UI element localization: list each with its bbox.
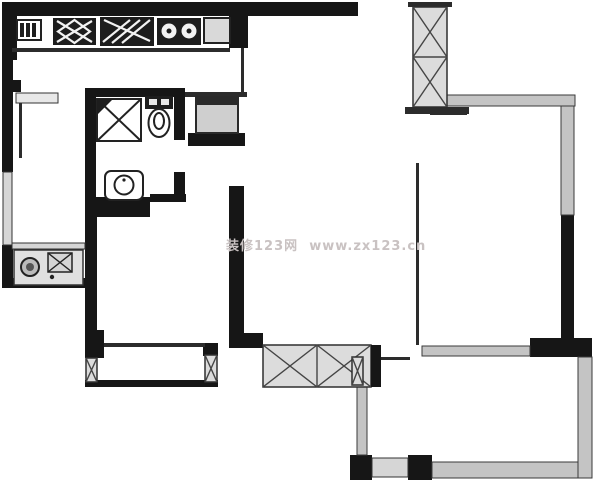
wall-brwin-left-block xyxy=(350,455,372,480)
wall-br-left-gray xyxy=(357,385,367,455)
toilet-icon xyxy=(145,96,173,137)
wall-right-gray-upper xyxy=(561,106,574,215)
door-leaf-line xyxy=(19,103,22,158)
hatch-post-blwin-right xyxy=(205,355,217,382)
wall-blwin-right-block xyxy=(203,343,218,356)
wall-kitchen-right-block xyxy=(229,2,248,48)
wall-br-top-gray xyxy=(422,346,530,356)
wall-central-spine xyxy=(229,186,244,348)
kitchen-area xyxy=(12,17,230,52)
wall-top-band xyxy=(2,2,358,16)
wall-blwin-bottom-line xyxy=(85,380,218,387)
wall-thin-kitchen-stub xyxy=(241,48,244,95)
floor-plan-svg: 装修123网 www.zx123.cn xyxy=(0,0,600,489)
wall-central-spine-foot xyxy=(229,333,263,348)
duct-niche xyxy=(196,97,238,133)
fridge-icon xyxy=(204,18,230,43)
shower-icon xyxy=(97,99,141,141)
wall-bath-left xyxy=(85,95,96,197)
wall-right-black xyxy=(561,215,574,343)
window-left-wall xyxy=(3,172,12,245)
floor-plan: 装修123网 www.zx123.cn xyxy=(0,0,600,489)
kitchen-cabinet-icon xyxy=(17,20,41,40)
wall-niche-bottom-bar xyxy=(188,133,245,146)
window-br-bottom xyxy=(372,458,408,477)
wall-brwin-right-block xyxy=(408,455,432,480)
hatch-post-blwin-left xyxy=(86,358,97,382)
left-bedroom-area xyxy=(16,93,58,158)
washer-icon xyxy=(21,258,39,276)
wall-utility-right xyxy=(85,217,97,330)
wall-stub-left-room xyxy=(12,80,21,92)
utility-balcony-area xyxy=(14,250,83,285)
wall-blwin-top-line xyxy=(104,343,205,347)
dish-rack-icon xyxy=(100,17,154,46)
double-sink-icon xyxy=(157,18,201,45)
wall-bath-top xyxy=(85,88,185,97)
wardrobe-shelf xyxy=(16,93,58,103)
washbasin-icon xyxy=(105,171,143,200)
bathroom-area xyxy=(97,96,238,200)
wall-br-bottom-gray xyxy=(432,462,578,478)
wall-blwin-left-block xyxy=(85,330,104,358)
wall-upper-right-horizontal xyxy=(447,95,575,106)
hatch-post-br-left xyxy=(352,357,363,385)
wall-bath-right-upper xyxy=(174,95,185,140)
wall-br-right-gray xyxy=(578,357,592,478)
room-divider-line xyxy=(416,163,419,345)
wall-bottom-right-top-bar xyxy=(530,338,592,357)
wall-left-upper xyxy=(2,58,13,172)
wall-hall-bottom-thin xyxy=(150,194,186,202)
watermark-text: 装修123网 www.zx123.cn xyxy=(225,238,426,254)
sill-utility-top xyxy=(12,243,85,249)
kitchen-counter-edge xyxy=(12,48,230,52)
stove-icon xyxy=(53,18,96,45)
